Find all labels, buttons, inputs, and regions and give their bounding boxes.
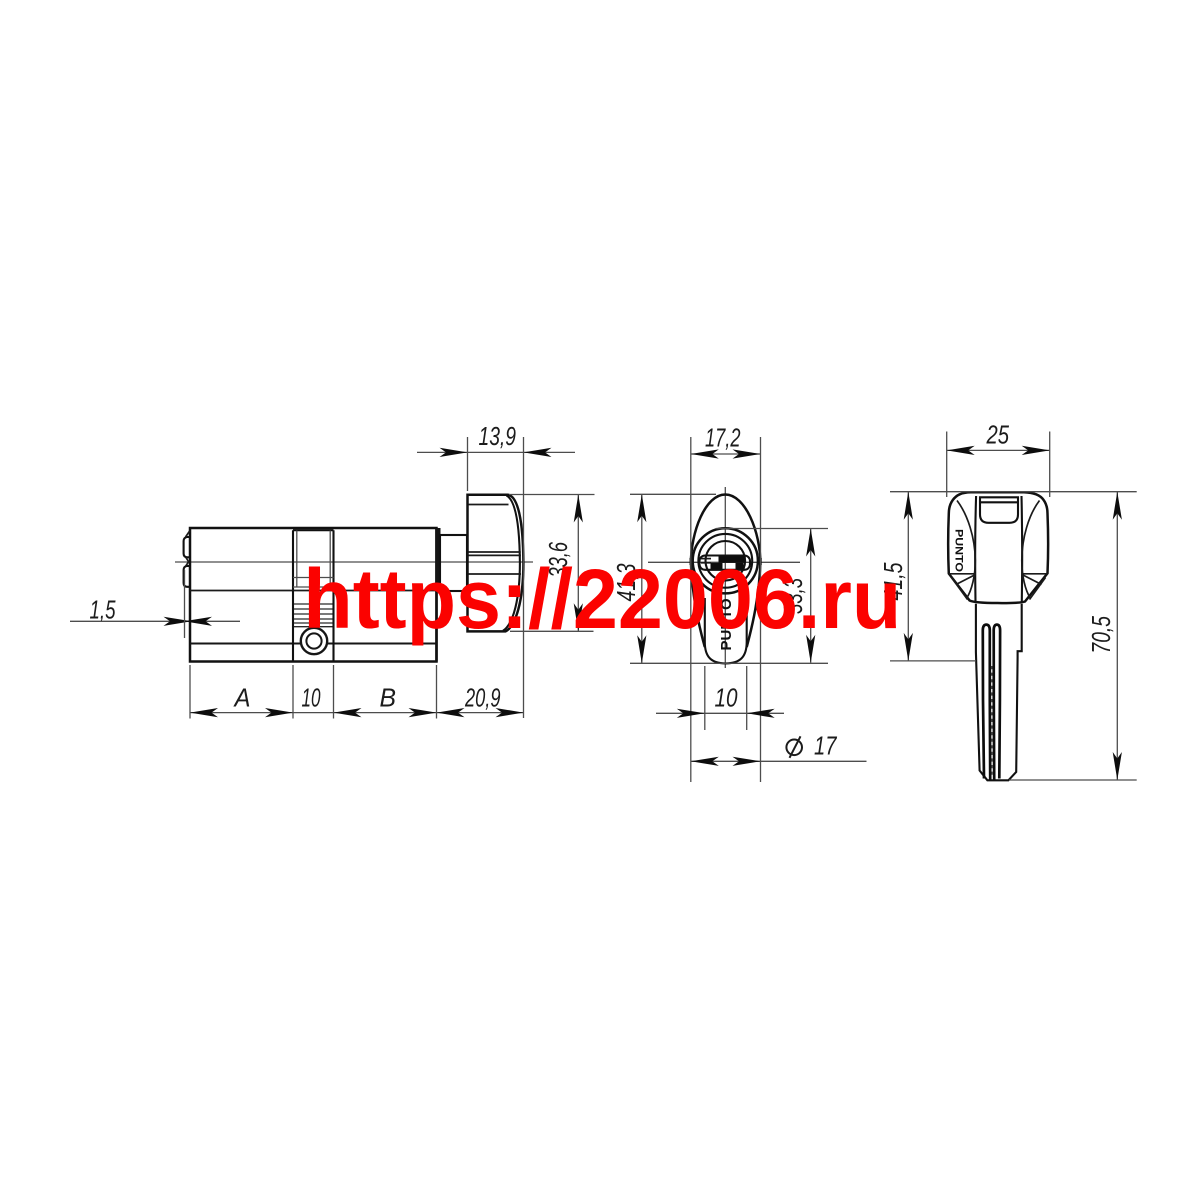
- svg-text:13,9: 13,9: [479, 421, 517, 451]
- svg-text:PUNTO: PUNTO: [953, 529, 965, 572]
- svg-text:10: 10: [302, 682, 321, 712]
- svg-text:25: 25: [986, 420, 1010, 450]
- svg-text:A: A: [233, 682, 251, 712]
- svg-text:1,5: 1,5: [90, 594, 116, 624]
- svg-text:20,9: 20,9: [464, 682, 500, 712]
- svg-text:70,5: 70,5: [1086, 616, 1116, 654]
- svg-text:B: B: [380, 682, 397, 712]
- svg-text:17,2: 17,2: [705, 423, 741, 453]
- svg-text:10: 10: [715, 683, 738, 713]
- svg-text:https://22006.ru: https://22006.ru: [303, 552, 901, 646]
- svg-text:17: 17: [814, 731, 838, 761]
